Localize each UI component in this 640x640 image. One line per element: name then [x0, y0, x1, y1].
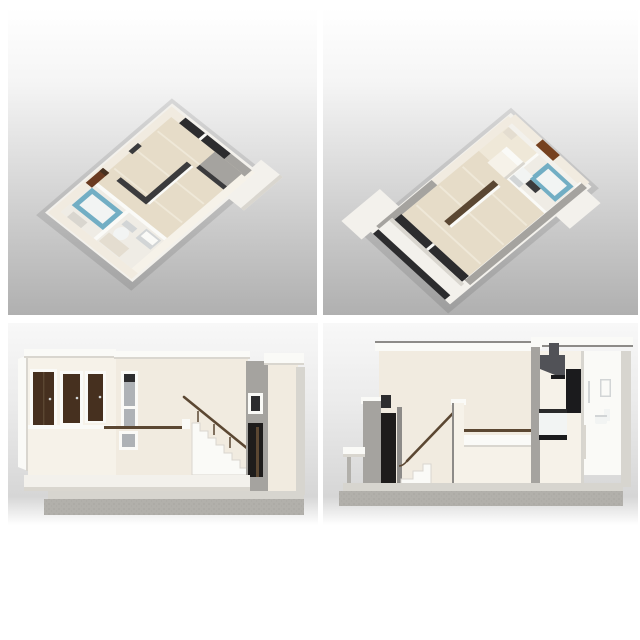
kitchen-cabinet: [539, 413, 567, 435]
upper-window-glass: [251, 396, 260, 411]
base-top: [343, 483, 623, 492]
panel-section-view-b: [323, 323, 638, 525]
door-jamb: [397, 407, 402, 489]
hood-lip: [551, 375, 565, 379]
cabinet-toe-kick: [539, 435, 567, 440]
stair-wall-edge: [452, 403, 454, 489]
panel-floorplan-view-a: [8, 8, 317, 315]
stair-wall: [454, 403, 464, 489]
stair-newel: [182, 419, 190, 429]
unit-plan-b: [341, 93, 608, 315]
tall-window-glass-bottom: [124, 409, 135, 426]
door-seam: [43, 372, 44, 425]
door-side-rail: [256, 427, 259, 477]
concrete-texture: [339, 491, 623, 506]
shower-bar: [588, 381, 590, 403]
loft-floor-edge: [464, 435, 536, 445]
lower-door-recess: [248, 423, 263, 477]
base-top: [48, 491, 304, 500]
right-roof-line: [531, 345, 633, 347]
main-parapet-shade: [114, 357, 250, 359]
divider-wall: [531, 347, 540, 485]
porch-roof: [343, 447, 365, 454]
panel-floorplan-view-b: [323, 8, 638, 315]
concrete-texture: [44, 499, 304, 515]
door-sill: [28, 425, 116, 429]
ceiling-cap: [375, 343, 533, 351]
window-transom: [124, 406, 135, 409]
right-outer-wall: [621, 351, 631, 487]
water-heater: [602, 381, 610, 396]
entry-doors: [28, 369, 116, 429]
right-outer-edge: [296, 367, 305, 495]
doors-parapet: [24, 349, 116, 357]
section-b-render: [323, 323, 638, 525]
roof-line: [375, 341, 533, 343]
square-window-glass: [122, 434, 135, 447]
walkway-edge: [24, 487, 250, 491]
panel-section-view-a: [8, 323, 318, 525]
bathtub-front: [583, 425, 627, 459]
building-section-a: [18, 349, 305, 515]
door-knob: [99, 396, 102, 399]
listing-image-grid: [0, 0, 640, 640]
parapet-shade: [24, 356, 116, 358]
right-parapet: [264, 353, 304, 364]
transom-window: [381, 395, 391, 408]
porch-roof-shade: [343, 454, 365, 457]
refrigerator: [566, 369, 581, 413]
loft-floor-shade: [464, 445, 536, 447]
right-section-wall: [268, 363, 298, 495]
unit-plan-a: [36, 93, 283, 298]
hood-flue: [549, 343, 559, 356]
right-roof-cap: [531, 337, 633, 345]
door-knob: [49, 398, 52, 401]
bath-divider: [581, 351, 584, 485]
counter-top: [539, 409, 567, 413]
lower-room-wall: [464, 447, 531, 485]
right-parapet-shade: [264, 363, 304, 365]
section-a-render: [8, 323, 318, 525]
floorplan-a-render: [8, 8, 317, 315]
porch-post: [347, 457, 351, 487]
door-knob: [76, 397, 79, 400]
main-parapet: [114, 351, 250, 358]
tall-window-dark-pane: [124, 374, 135, 382]
entry-door: [381, 413, 396, 489]
building-section-b: [339, 337, 633, 506]
floorplan-b-render: [323, 8, 638, 315]
toilet-seat: [595, 415, 607, 417]
bathtub-edge: [583, 425, 586, 459]
corridor-rail: [104, 426, 188, 429]
left-exterior-wall: [363, 401, 381, 489]
